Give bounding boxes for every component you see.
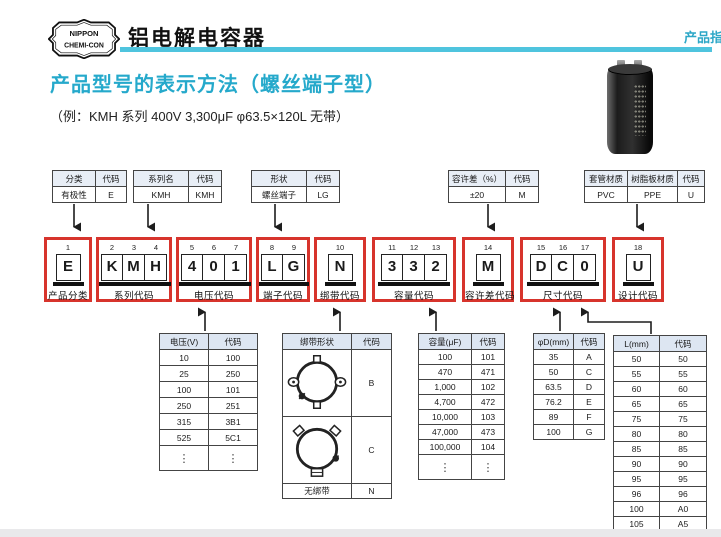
table-cell: C bbox=[574, 365, 605, 380]
underline-bar bbox=[527, 282, 599, 286]
digit-position-numbers: 10 bbox=[317, 243, 363, 253]
band-shape-code-table: 绑带形状代码 B C无绑带N bbox=[282, 333, 392, 499]
table-row: 63.5D bbox=[534, 380, 605, 395]
table-cell: LG bbox=[307, 187, 340, 203]
table-header-cell: φD(mm) bbox=[534, 334, 574, 350]
table-row: 100101 bbox=[160, 382, 258, 398]
table-header-cell: 代码 bbox=[472, 334, 505, 350]
legend-table-tolerance: 容许差（%）代码±20M bbox=[448, 170, 539, 203]
code-character-cells: E bbox=[47, 254, 89, 281]
code-character: 0 bbox=[203, 254, 225, 281]
code-box-设计代码: 18U设计代码 bbox=[612, 237, 664, 302]
table-row: 47,000473 bbox=[419, 425, 505, 440]
underline-bar bbox=[325, 282, 356, 286]
code-character: L bbox=[261, 254, 283, 281]
diameter-code-table: φD(mm)代码35A50C63.5D76.2E89F100G bbox=[533, 333, 605, 440]
header-rule bbox=[120, 47, 712, 52]
digit-position-numbers: 151617 bbox=[523, 243, 603, 253]
table-cell: E bbox=[96, 187, 127, 203]
capacitance-code-table: 容量(μF)代码1001014704711,0001024,70047210,0… bbox=[418, 333, 505, 480]
table-cell: 90 bbox=[660, 457, 707, 472]
table-row: 3153B1 bbox=[160, 414, 258, 430]
table-header-cell: 容许差（%） bbox=[449, 171, 506, 187]
table-row: ⋮⋮ bbox=[419, 455, 505, 480]
table-row: 76.2E bbox=[534, 395, 605, 410]
legend-table-series: 系列名代码KMHKMH bbox=[133, 170, 222, 203]
table-cell: 315 bbox=[160, 414, 209, 430]
table-cell: ⋮ bbox=[419, 455, 472, 480]
table-cell: 47,000 bbox=[419, 425, 472, 440]
table-cell: 有极性 bbox=[53, 187, 96, 203]
underline-bar bbox=[53, 282, 84, 286]
table-row: 4,700472 bbox=[419, 395, 505, 410]
table-header-cell: 容量(μF) bbox=[419, 334, 472, 350]
logo-shield-outline bbox=[49, 20, 119, 59]
digit-position-numbers: 1 bbox=[47, 243, 89, 253]
table-row: 5255C1 bbox=[160, 430, 258, 446]
table-cell: 95 bbox=[614, 472, 660, 487]
table-cell: 90 bbox=[614, 457, 660, 472]
table-cell: 95 bbox=[660, 472, 707, 487]
code-box-label: 容量代码 bbox=[375, 288, 453, 302]
table-cell: 60 bbox=[660, 382, 707, 397]
table-cell: G bbox=[574, 425, 605, 440]
table-row: B bbox=[283, 350, 392, 417]
code-character-cells: M bbox=[465, 254, 511, 281]
table-cell: 101 bbox=[209, 382, 258, 398]
table-row: C bbox=[283, 417, 392, 484]
table-cell: PPE bbox=[628, 187, 678, 203]
table-row: 7575 bbox=[614, 412, 707, 427]
code-character: C bbox=[552, 254, 574, 281]
capacitor-print-texture bbox=[634, 84, 646, 136]
table-header-cell: 代码 bbox=[96, 171, 127, 187]
code-box-label: 端子代码 bbox=[259, 288, 307, 302]
catalog-page: NIPPON CHEMI-CON 铝电解电容器 产品指 产品型号的表示方法（螺丝… bbox=[0, 0, 721, 537]
code-character: H bbox=[145, 254, 167, 281]
logo-text-line1: NIPPON bbox=[69, 29, 98, 38]
table-cell: 80 bbox=[614, 427, 660, 442]
table-cell: E bbox=[574, 395, 605, 410]
table-cell: 101 bbox=[472, 350, 505, 365]
table-cell: N bbox=[352, 484, 392, 499]
page-bottom-strip bbox=[0, 529, 721, 537]
table-row: 8080 bbox=[614, 427, 707, 442]
table-row: 25250 bbox=[160, 366, 258, 382]
underline-bar bbox=[473, 282, 504, 286]
table-cell: 4,700 bbox=[419, 395, 472, 410]
table-row: 100G bbox=[534, 425, 605, 440]
table-row: 无绑带N bbox=[283, 484, 392, 499]
table-cell: 96 bbox=[660, 487, 707, 502]
legend-table-polarity: 分类代码有极性E bbox=[52, 170, 127, 203]
table-cell: KMH bbox=[134, 187, 189, 203]
digit-position-numbers: 18 bbox=[615, 243, 661, 253]
code-character: 3 bbox=[381, 254, 403, 281]
table-cell: ±20 bbox=[449, 187, 506, 203]
table-cell: 35 bbox=[534, 350, 574, 365]
table-cell: 1,000 bbox=[419, 380, 472, 395]
code-box-label: 电压代码 bbox=[179, 288, 249, 302]
table-cell: 96 bbox=[614, 487, 660, 502]
table-header-cell: 代码 bbox=[678, 171, 705, 187]
length-code-table: L(mm)代码505055556060656575758080858590909… bbox=[613, 335, 707, 537]
table-cell: 103 bbox=[472, 410, 505, 425]
table-cell: 65 bbox=[614, 397, 660, 412]
code-character: 0 bbox=[574, 254, 596, 281]
table-header-cell: 系列名 bbox=[134, 171, 189, 187]
table-row: KMHKMH bbox=[134, 187, 222, 203]
underline-bar bbox=[378, 282, 450, 286]
table-cell: F bbox=[574, 410, 605, 425]
table-header-cell: 代码 bbox=[352, 334, 392, 350]
code-character-cells: 401 bbox=[179, 254, 249, 281]
code-character: 4 bbox=[181, 254, 203, 281]
table-row: 5555 bbox=[614, 367, 707, 382]
table-row: 9090 bbox=[614, 457, 707, 472]
example-line: （例：KMH 系列 400V 3,300μF φ63.5×120L 无带） bbox=[50, 106, 349, 125]
table-cell: U bbox=[678, 187, 705, 203]
table-cell: 10,000 bbox=[419, 410, 472, 425]
table-cell: 471 bbox=[472, 365, 505, 380]
table-cell: M bbox=[506, 187, 539, 203]
table-cell: 85 bbox=[660, 442, 707, 457]
table-cell: ⋮ bbox=[160, 446, 209, 471]
underline-bar bbox=[623, 282, 654, 286]
code-character: U bbox=[626, 254, 651, 281]
section-heading: 产品型号的表示方法（螺丝端子型） bbox=[50, 68, 386, 97]
underline-bar bbox=[259, 282, 309, 286]
table-cell: 100,000 bbox=[419, 440, 472, 455]
code-box-label: 产品分类 bbox=[47, 288, 89, 302]
code-box-系列代码: 234KMH系列代码 bbox=[96, 237, 172, 302]
table-header-cell: 代码 bbox=[660, 336, 707, 352]
table-cell bbox=[283, 350, 352, 417]
digit-position-numbers: 89 bbox=[259, 243, 307, 253]
code-box-端子代码: 89LG端子代码 bbox=[256, 237, 310, 302]
digit-position-numbers: 567 bbox=[179, 243, 249, 253]
table-cell: 104 bbox=[472, 440, 505, 455]
table-row: 10100 bbox=[160, 350, 258, 366]
code-character: M bbox=[476, 254, 501, 281]
table-cell: B bbox=[352, 350, 392, 417]
code-character: 3 bbox=[403, 254, 425, 281]
table-cell: 100 bbox=[209, 350, 258, 366]
capacitor-top-cap bbox=[608, 64, 652, 75]
table-header-cell: 电压(V) bbox=[160, 334, 209, 350]
table-row: 35A bbox=[534, 350, 605, 365]
code-character-cells: DC0 bbox=[523, 254, 603, 281]
code-character: K bbox=[101, 254, 123, 281]
table-cell: D bbox=[574, 380, 605, 395]
table-header-cell: 树脂板材质 bbox=[628, 171, 678, 187]
legend-table-shape: 形状代码螺丝端子LG bbox=[251, 170, 340, 203]
table-cell: 50 bbox=[614, 352, 660, 367]
table-cell: 50 bbox=[660, 352, 707, 367]
code-box-容许差代码: 14M容许差代码 bbox=[462, 237, 514, 302]
table-row: ±20M bbox=[449, 187, 539, 203]
code-character: M bbox=[123, 254, 145, 281]
table-cell: 473 bbox=[472, 425, 505, 440]
table-cell: 60 bbox=[614, 382, 660, 397]
table-row: 470471 bbox=[419, 365, 505, 380]
table-cell: A bbox=[574, 350, 605, 365]
digit-position-numbers: 14 bbox=[465, 243, 511, 253]
table-header-cell: 分类 bbox=[53, 171, 96, 187]
code-box-label: 容许差代码 bbox=[465, 288, 511, 302]
legend-table-sleeve: 套管材质树脂板材质代码PVCPPEU bbox=[584, 170, 705, 203]
table-cell: 89 bbox=[534, 410, 574, 425]
table-cell: 5C1 bbox=[209, 430, 258, 446]
table-cell: A0 bbox=[660, 502, 707, 517]
underline-bar bbox=[179, 282, 251, 286]
code-character: E bbox=[56, 254, 81, 281]
table-cell: 100 bbox=[614, 502, 660, 517]
table-cell: 102 bbox=[472, 380, 505, 395]
code-box-label: 系列代码 bbox=[99, 288, 169, 302]
table-cell: 10 bbox=[160, 350, 209, 366]
table-cell: 55 bbox=[614, 367, 660, 382]
table-row: 9595 bbox=[614, 472, 707, 487]
table-row: 螺丝端子LG bbox=[252, 187, 340, 203]
table-row: 100,000104 bbox=[419, 440, 505, 455]
code-character-cells: N bbox=[317, 254, 363, 281]
code-character: 2 bbox=[425, 254, 447, 281]
table-row: 250251 bbox=[160, 398, 258, 414]
table-cell: 100 bbox=[160, 382, 209, 398]
table-cell: 85 bbox=[614, 442, 660, 457]
table-cell: 3B1 bbox=[209, 414, 258, 430]
table-row: ⋮⋮ bbox=[160, 446, 258, 471]
capacitor-photo bbox=[607, 60, 653, 154]
table-cell: 525 bbox=[160, 430, 209, 446]
table-cell: 100 bbox=[534, 425, 574, 440]
table-row: 100A0 bbox=[614, 502, 707, 517]
table-header-cell: 代码 bbox=[307, 171, 340, 187]
table-cell: 65 bbox=[660, 397, 707, 412]
table-row: 50C bbox=[534, 365, 605, 380]
code-character: D bbox=[530, 254, 552, 281]
table-header-cell: 代码 bbox=[209, 334, 258, 350]
table-row: 1,000102 bbox=[419, 380, 505, 395]
logo-text-line2: CHEMI-CON bbox=[64, 42, 104, 49]
table-header-cell: 形状 bbox=[252, 171, 307, 187]
table-row: 有极性E bbox=[53, 187, 127, 203]
digit-position-numbers: 234 bbox=[99, 243, 169, 253]
band-shape-c-figure bbox=[287, 418, 347, 480]
code-box-产品分类: 1E产品分类 bbox=[44, 237, 92, 302]
table-cell: 75 bbox=[660, 412, 707, 427]
code-character-cells: LG bbox=[259, 254, 307, 281]
table-row: 10,000103 bbox=[419, 410, 505, 425]
table-cell: 80 bbox=[660, 427, 707, 442]
code-character: N bbox=[328, 254, 353, 281]
table-cell: ⋮ bbox=[209, 446, 258, 471]
code-character-cells: 332 bbox=[375, 254, 453, 281]
table-row: 100101 bbox=[419, 350, 505, 365]
code-box-绑带代码: 10N绑带代码 bbox=[314, 237, 366, 302]
table-cell: 75 bbox=[614, 412, 660, 427]
table-cell: 470 bbox=[419, 365, 472, 380]
table-cell: 76.2 bbox=[534, 395, 574, 410]
table-cell: C bbox=[352, 417, 392, 484]
table-row: 6060 bbox=[614, 382, 707, 397]
code-character-cells: U bbox=[615, 254, 661, 281]
table-header-cell: 代码 bbox=[506, 171, 539, 187]
table-cell: KMH bbox=[189, 187, 222, 203]
code-box-label: 设计代码 bbox=[615, 288, 661, 302]
code-character-cells: KMH bbox=[99, 254, 169, 281]
voltage-code-table: 电压(V)代码10100252501001012502513153B15255C… bbox=[159, 333, 258, 471]
table-cell: PVC bbox=[585, 187, 628, 203]
code-character: 1 bbox=[225, 254, 247, 281]
table-row: 89F bbox=[534, 410, 605, 425]
table-cell: 50 bbox=[534, 365, 574, 380]
table-row: 6565 bbox=[614, 397, 707, 412]
chemi-con-logo: NIPPON CHEMI-CON bbox=[48, 19, 120, 59]
table-cell: 472 bbox=[472, 395, 505, 410]
table-cell: 100 bbox=[419, 350, 472, 365]
table-cell: 螺丝端子 bbox=[252, 187, 307, 203]
table-cell: 25 bbox=[160, 366, 209, 382]
arrow-length-to-box bbox=[588, 312, 651, 334]
code-box-尺寸代码: 151617DC0尺寸代码 bbox=[520, 237, 606, 302]
table-cell: 251 bbox=[209, 398, 258, 414]
table-row: 9696 bbox=[614, 487, 707, 502]
code-box-label: 绑带代码 bbox=[317, 288, 363, 302]
table-cell: 63.5 bbox=[534, 380, 574, 395]
code-box-电压代码: 567401电压代码 bbox=[176, 237, 252, 302]
table-cell: 55 bbox=[660, 367, 707, 382]
table-header-cell: 套管材质 bbox=[585, 171, 628, 187]
code-box-label: 尺寸代码 bbox=[523, 288, 603, 302]
table-cell bbox=[283, 417, 352, 484]
digit-position-numbers: 111213 bbox=[375, 243, 453, 253]
table-header-cell: 代码 bbox=[574, 334, 605, 350]
table-header-cell: 绑带形状 bbox=[283, 334, 352, 350]
code-box-容量代码: 111213332容量代码 bbox=[372, 237, 456, 302]
table-cell: 250 bbox=[160, 398, 209, 414]
corner-tab-label: 产品指 bbox=[684, 27, 721, 46]
underline-bar bbox=[99, 282, 171, 286]
table-cell: 无绑带 bbox=[283, 484, 352, 499]
code-character: G bbox=[283, 254, 305, 281]
table-row: PVCPPEU bbox=[585, 187, 705, 203]
table-header-cell: 代码 bbox=[189, 171, 222, 187]
table-cell: 250 bbox=[209, 366, 258, 382]
table-header-cell: L(mm) bbox=[614, 336, 660, 352]
capacitor-body bbox=[607, 67, 653, 154]
table-cell: ⋮ bbox=[472, 455, 505, 480]
table-row: 5050 bbox=[614, 352, 707, 367]
band-shape-b-figure bbox=[287, 351, 347, 413]
table-row: 8585 bbox=[614, 442, 707, 457]
